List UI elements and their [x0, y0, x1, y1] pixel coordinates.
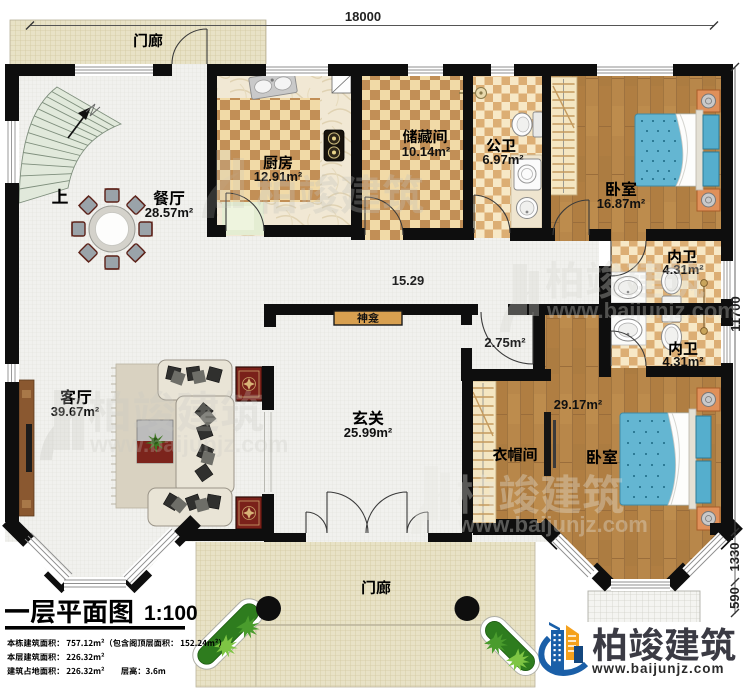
svg-text:29.17m²: 29.17m²: [554, 397, 603, 412]
svg-text:1:100: 1:100: [144, 602, 198, 625]
svg-text:12.91m²: 12.91m²: [254, 169, 303, 184]
svg-text:www.baijunjz.com: www.baijunjz.com: [591, 661, 725, 676]
svg-text:www.baijunjz.com: www.baijunjz.com: [457, 512, 648, 537]
svg-text:4.31m²: 4.31m²: [662, 354, 704, 369]
svg-text:18000: 18000: [345, 9, 381, 24]
svg-text:15.29: 15.29: [392, 273, 425, 288]
svg-text:6.97m²: 6.97m²: [482, 152, 524, 167]
svg-text:25.99m²: 25.99m²: [344, 425, 393, 440]
svg-text:28.57m²: 28.57m²: [145, 205, 194, 220]
svg-text:590: 590: [727, 587, 742, 609]
svg-text:10.14m²: 10.14m²: [402, 144, 451, 159]
svg-text:2.75m²: 2.75m²: [484, 335, 526, 350]
svg-text:www.baijunjz.com: www.baijunjz.com: [546, 298, 737, 323]
svg-text:16.87m²: 16.87m²: [597, 196, 646, 211]
svg-text:www.baijunjz.com: www.baijunjz.com: [89, 431, 289, 457]
svg-text:1330: 1330: [727, 543, 742, 572]
